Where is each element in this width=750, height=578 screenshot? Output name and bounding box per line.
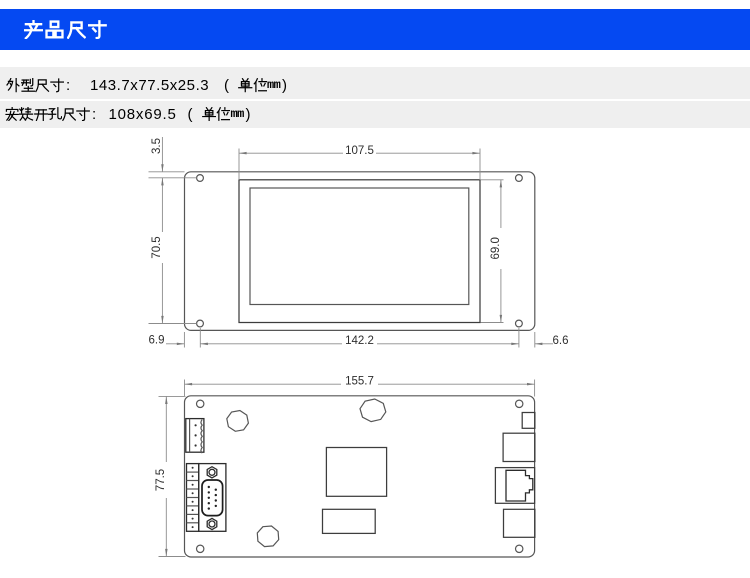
svg-text:77.5: 77.5	[155, 469, 167, 491]
svg-text:6.6: 6.6	[553, 335, 569, 347]
svg-text:69.0: 69.0	[490, 237, 502, 259]
svg-text:3.5: 3.5	[151, 138, 163, 154]
svg-text:107.5: 107.5	[345, 145, 374, 157]
svg-text:6.9: 6.9	[149, 335, 165, 347]
svg-text:155.7: 155.7	[345, 375, 374, 387]
svg-text:142.2: 142.2	[345, 335, 374, 347]
svg-text:70.5: 70.5	[151, 236, 163, 258]
